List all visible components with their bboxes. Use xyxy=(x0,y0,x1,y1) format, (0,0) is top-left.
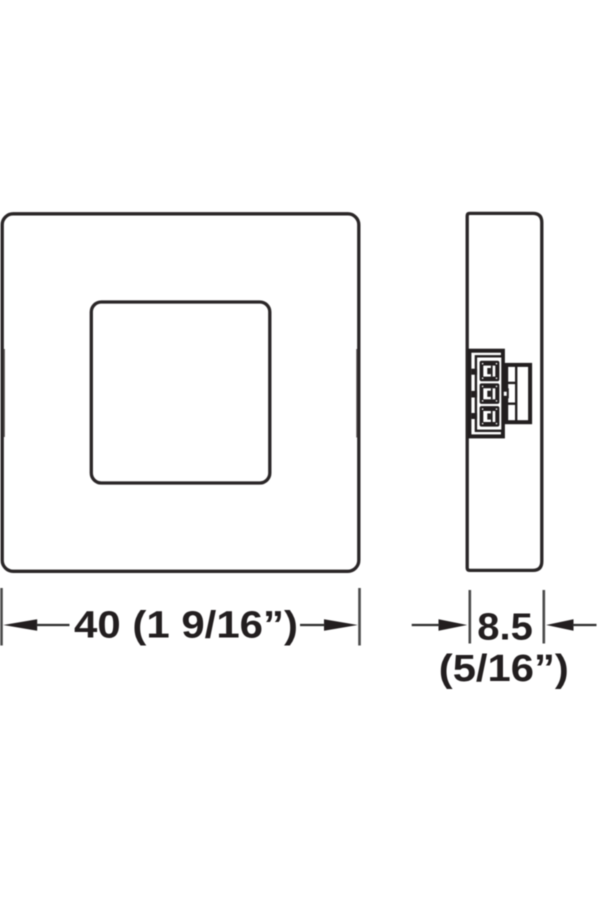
svg-text:40 (1 9/16”): 40 (1 9/16”) xyxy=(74,604,298,646)
svg-text:8.5: 8.5 xyxy=(477,607,533,649)
svg-text:(5/16”): (5/16”) xyxy=(439,648,569,690)
